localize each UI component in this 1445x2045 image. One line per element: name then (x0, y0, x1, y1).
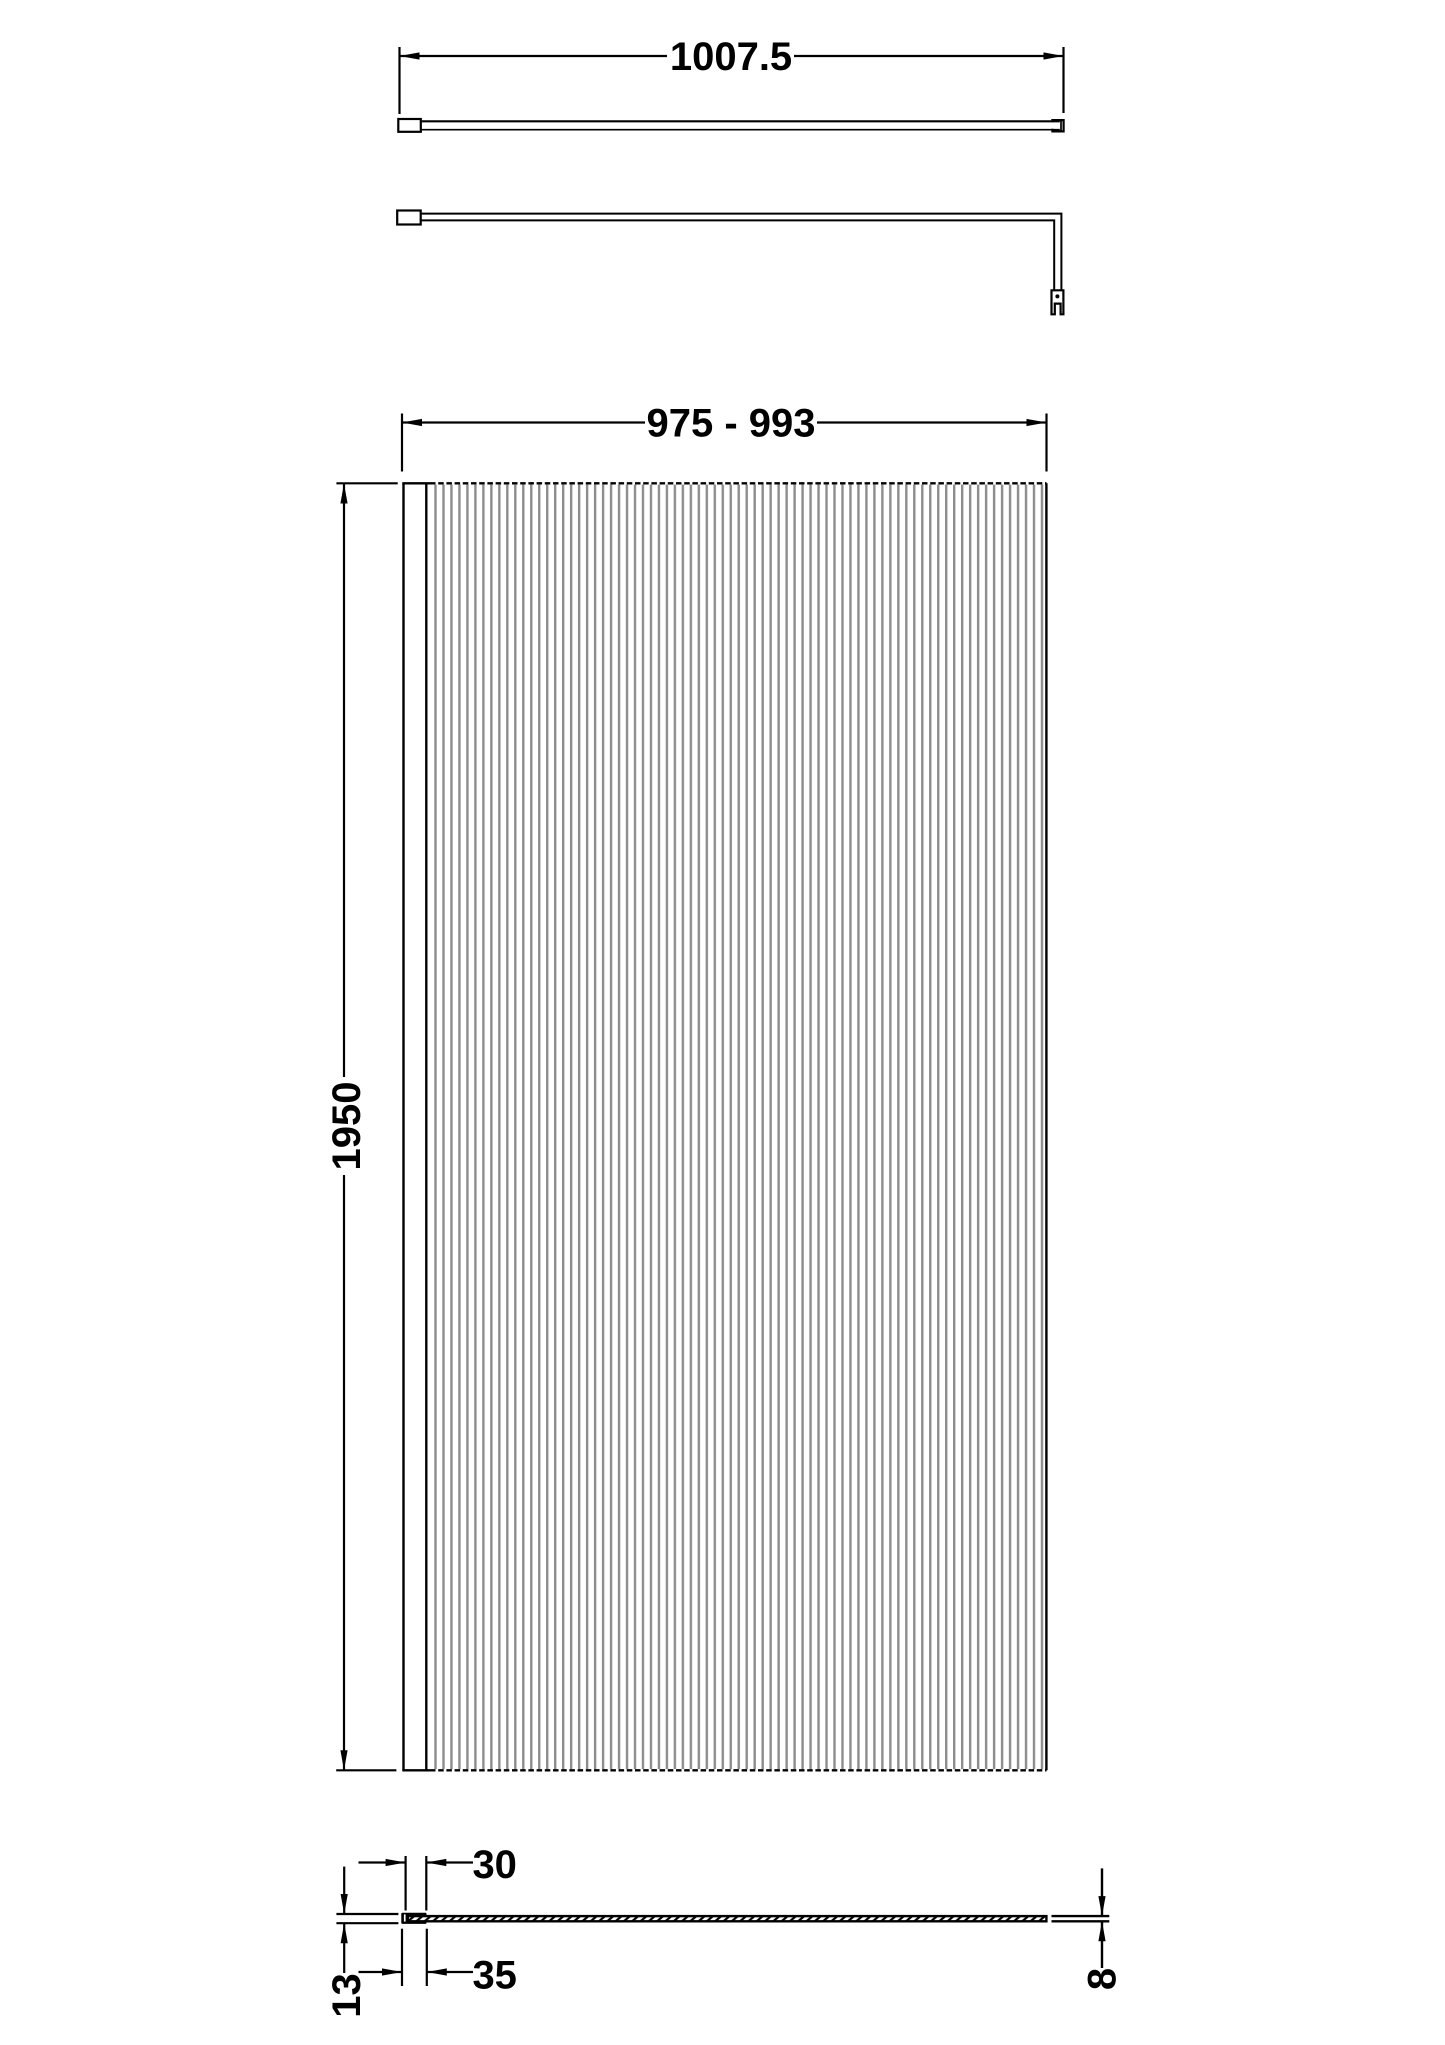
svg-text:35: 35 (472, 1954, 517, 1998)
svg-text:1007.5: 1007.5 (670, 35, 792, 79)
svg-text:1950: 1950 (325, 1082, 369, 1171)
svg-text:975 - 993: 975 - 993 (646, 402, 815, 446)
svg-text:30: 30 (472, 1843, 517, 1887)
svg-text:13: 13 (325, 1973, 369, 2018)
svg-text:8: 8 (1081, 1968, 1125, 1990)
